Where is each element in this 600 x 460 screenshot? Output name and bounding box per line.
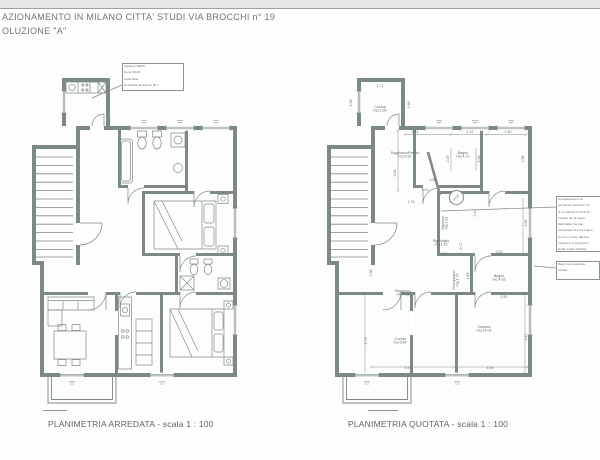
dimension-label: 1.01 xyxy=(422,188,429,192)
dimension-label: 1.66 xyxy=(407,102,411,109)
dimension-label: 3.47 xyxy=(524,334,528,341)
room-label: Cucinamq 9.84 xyxy=(394,337,407,345)
caption-plan-arredata: PLANIMETRIA ARREDATA - scala 1 : 100 xyxy=(48,419,214,429)
plan-quotata: Cucinamq 2.05Soggiorno/Pranzomq 6.92Bagn… xyxy=(327,73,532,407)
dimension-label: 3.97 xyxy=(405,366,412,370)
dimension-label: 2.41 xyxy=(412,130,419,134)
dimension-label: 2.19 xyxy=(446,156,450,163)
room-label: Soggiorno/Pranzomq 6.92 xyxy=(391,151,420,159)
plan-arredata-drawing xyxy=(32,73,237,407)
sheet-subtitle: OLUZIONE "A" xyxy=(2,26,67,36)
scanned-floor-plan-sheet: AZIONAMENTO IN MILANO CITTA' STUDI VIA B… xyxy=(0,0,600,460)
plan-arredata xyxy=(32,73,237,407)
dimension-label: 2.98 xyxy=(369,270,373,277)
room-label: Bagnomq 4.92 xyxy=(493,274,506,282)
dimension-label: 3.90 xyxy=(524,220,528,227)
room-label: Ingressomq 3.31 xyxy=(441,216,449,230)
caption-left-overline xyxy=(43,410,67,411)
reference-marker-label: P.03 xyxy=(453,194,460,202)
height-note-box: Considerando unapendenza minima (m 2)si … xyxy=(556,196,600,252)
sheet-title: AZIONAMENTO IN MILANO CITTA' STUDI VIA B… xyxy=(2,12,275,22)
caption-plan-quotata: PLANIMETRIA QUOTATA - scala 1 : 100 xyxy=(348,419,508,429)
ventilation-note-box: Bagni con areazioneforzata xyxy=(556,261,600,280)
dimension-label: 1.74 xyxy=(408,200,415,204)
dimension-label: 2.20 xyxy=(505,130,512,134)
room-label: Soggiornomq 7.15 xyxy=(395,289,411,297)
room-label: Disimpegnomq 1.74 xyxy=(452,271,460,290)
dimension-label: 2.81 xyxy=(501,295,508,299)
dimension-label: 1.03 xyxy=(456,292,463,296)
dimension-label: 1.71 xyxy=(377,84,384,88)
dimension-label: 1.69 xyxy=(466,273,470,280)
dimension-label: 2.56 xyxy=(521,156,525,163)
room-label: Bagnomq 4.10 xyxy=(457,151,470,159)
dimension-label: 3.64 xyxy=(393,170,397,177)
reference-marker: P.03 xyxy=(449,190,464,205)
dimension-label: 0.72 xyxy=(459,243,463,250)
plan-quotata-annotations: Cucinamq 2.05Soggiorno/Pranzomq 6.92Bagn… xyxy=(327,73,532,407)
room-label: Ripostigliomq 1.15 xyxy=(433,239,450,247)
dimension-label: 2.81 xyxy=(430,178,437,182)
caption-right-overline xyxy=(368,410,398,411)
dimension-label: 3.20 xyxy=(496,250,503,254)
dimension-label: 2.46 xyxy=(477,156,481,163)
room-label: Cameramq 14.02 xyxy=(477,325,492,333)
dimension-label: 1.50 xyxy=(441,252,448,256)
dimension-label: 2.43 xyxy=(473,210,477,217)
plan-a-note-box: Impianto N0697Dens. RA23Casa RotaEmissio… xyxy=(122,63,184,91)
dimension-label: 2.79 xyxy=(364,338,368,345)
dimension-label: 1.37 xyxy=(467,130,474,134)
dimension-label: 1.39 xyxy=(349,100,353,107)
dimension-label: 4.04 xyxy=(487,366,494,370)
room-label: Cucinamq 2.05 xyxy=(374,105,387,113)
